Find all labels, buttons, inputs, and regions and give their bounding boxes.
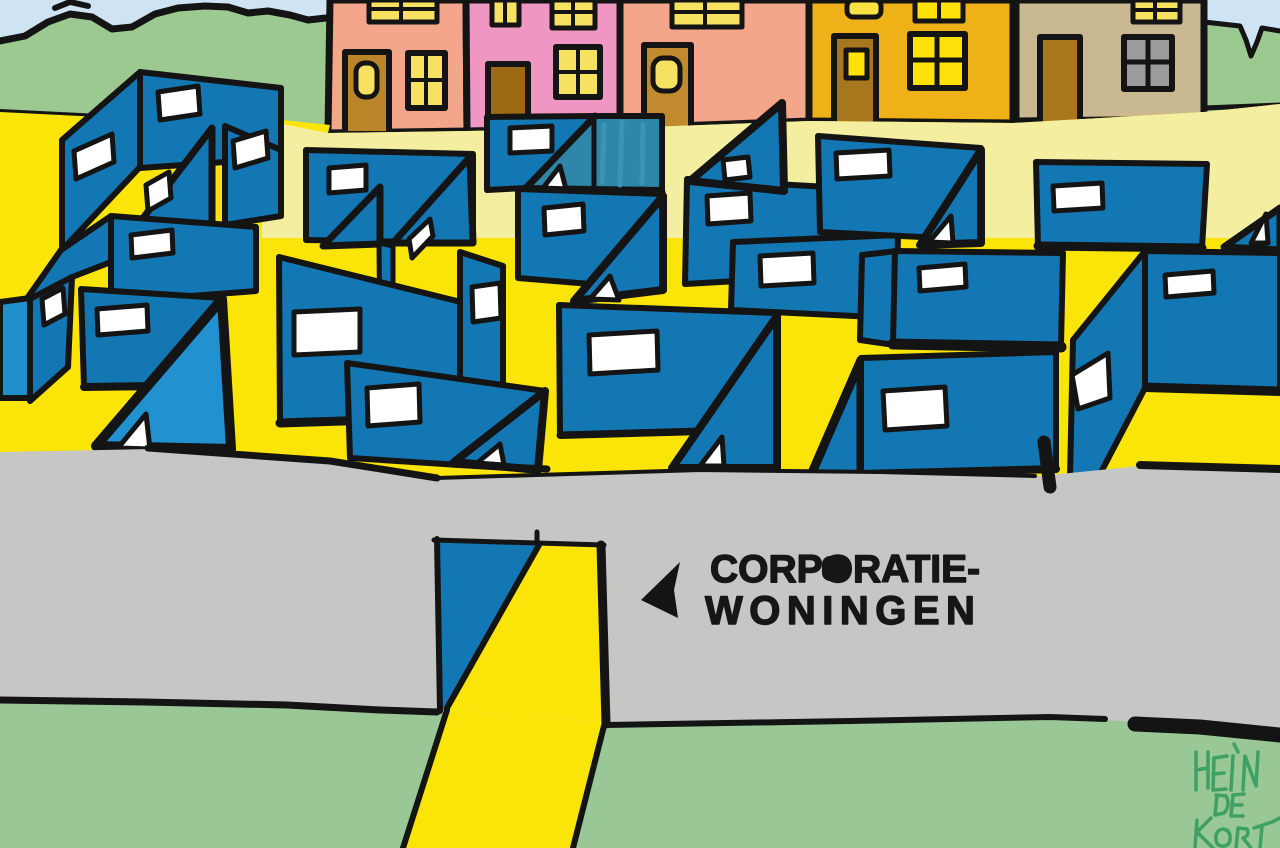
- svg-text:WONINGEN: WONINGEN: [705, 589, 981, 633]
